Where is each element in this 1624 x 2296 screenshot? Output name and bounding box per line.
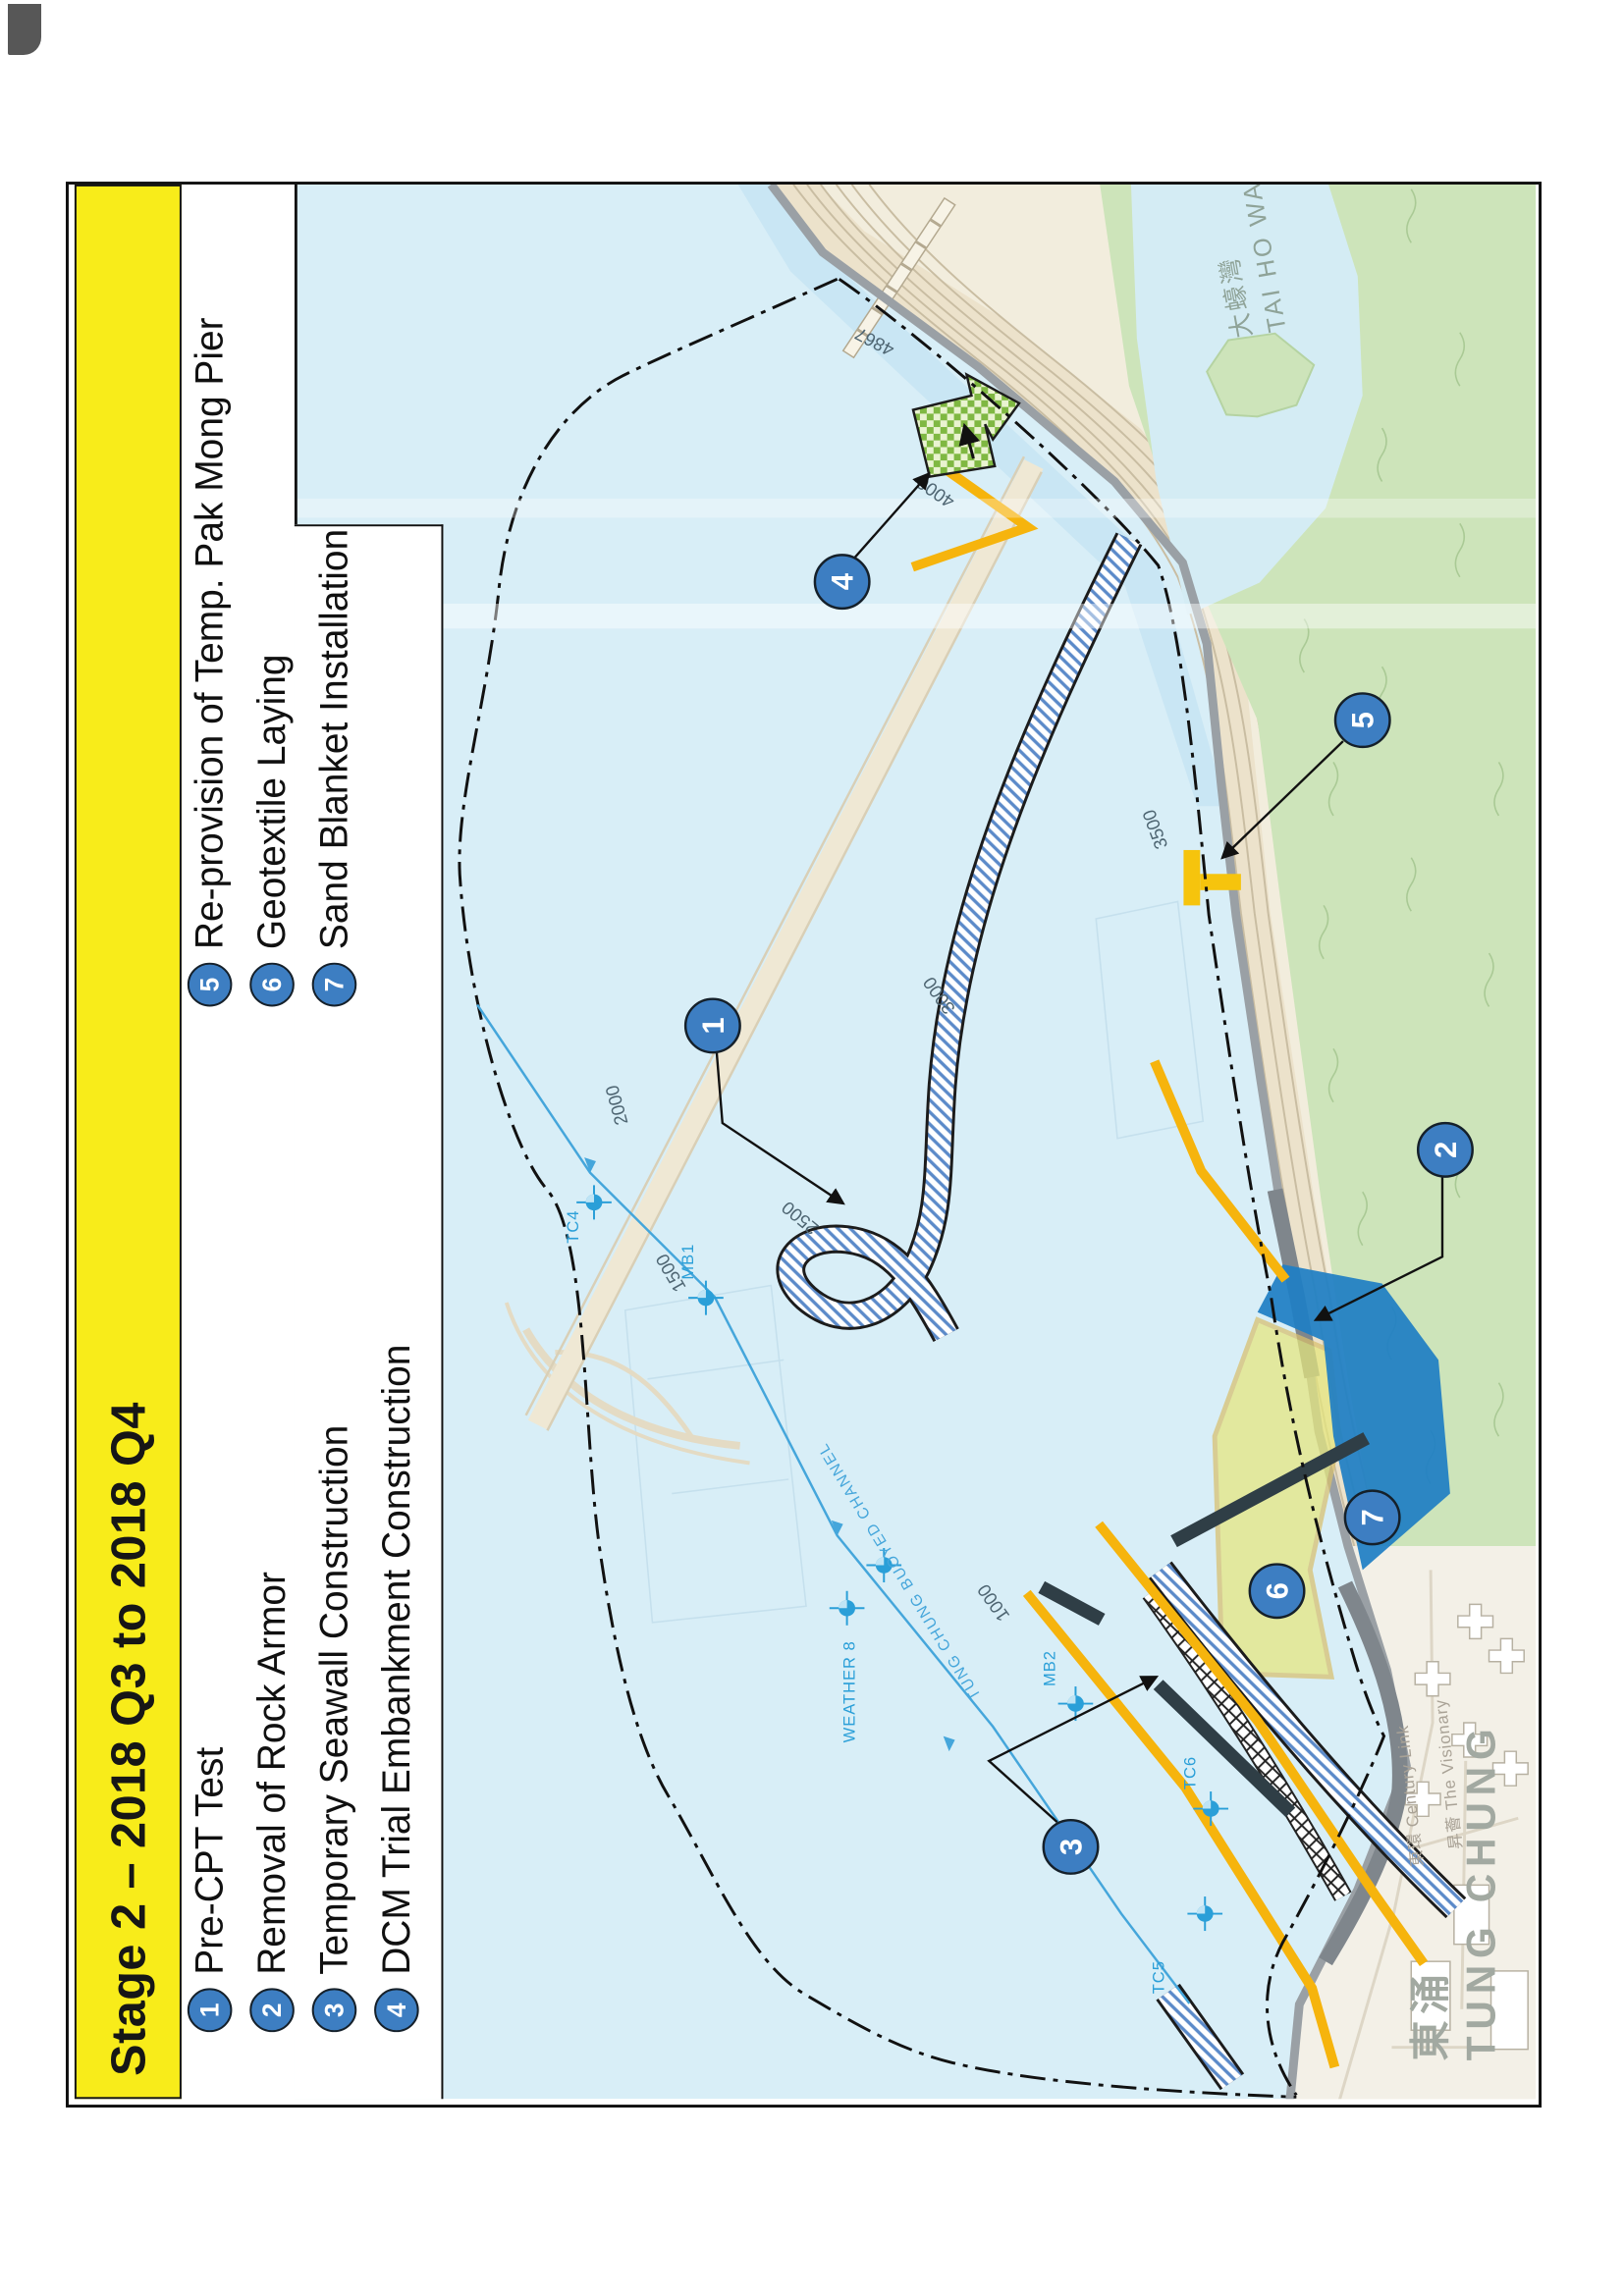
- scan-streak: [295, 499, 1536, 517]
- legend-item-7: 7 Sand Blanket Installation: [312, 529, 357, 1007]
- svg-text:東涌: 東涌: [1408, 1967, 1453, 2060]
- legend-item-2: 2 Removal of Rock Armor: [249, 1572, 295, 2032]
- survey-marker-label: TC5: [1149, 1960, 1167, 1994]
- drawing-sheet: WEATHER 8MB1TC4MB2TC6TC54867400035003000…: [66, 182, 1542, 2108]
- legend-bullet-5: 5: [188, 963, 233, 1007]
- legend-bullet-3: 3: [312, 1988, 357, 2032]
- legend-label-5: Re-provision of Temp. Pak Mong Pier: [188, 317, 232, 949]
- legend-item-4: 4 DCM Trial Embankment Construction: [374, 1345, 419, 2033]
- svg-text:TUNG CHUNG: TUNG CHUNG: [1458, 1722, 1503, 2060]
- svg-text:4: 4: [825, 572, 859, 590]
- survey-marker-label: WEATHER 8: [839, 1640, 858, 1742]
- page-title: Stage 2 – 2018 Q3 to 2018 Q4: [100, 1402, 156, 2097]
- legend-item-1: 1 Pre-CPT Test: [188, 1747, 233, 2032]
- map-callout-6: 6: [1250, 1565, 1304, 1618]
- svg-text:3: 3: [1054, 1839, 1088, 1855]
- svg-text:2: 2: [1429, 1142, 1463, 1158]
- map-callout-7: 7: [1345, 1491, 1399, 1544]
- survey-marker-label: TC4: [564, 1210, 582, 1244]
- svg-text:7: 7: [1355, 1509, 1389, 1525]
- survey-marker-label: MB2: [1041, 1650, 1059, 1686]
- scanned-page: { "title": "Stage 2 – 2018 Q3 to 2018 Q4…: [0, 0, 1624, 2296]
- legend-bullet-2: 2: [249, 1988, 295, 2032]
- svg-text:1: 1: [696, 1017, 731, 1034]
- survey-marker-label: TC6: [1180, 1756, 1199, 1789]
- legend-bullet-1: 1: [188, 1988, 233, 2032]
- legend-item-6: 6 Geotextile Laying: [249, 654, 295, 1006]
- scan-streak: [295, 604, 1536, 628]
- legend-label-3: Temporary Seawall Construction: [312, 1425, 356, 1975]
- legend-bullet-4: 4: [374, 1988, 419, 2032]
- legend-label-1: Pre-CPT Test: [188, 1747, 232, 1975]
- legend-item-3: 3 Temporary Seawall Construction: [312, 1425, 357, 2032]
- svg-text:6: 6: [1260, 1582, 1294, 1599]
- legend-label-4: DCM Trial Embankment Construction: [375, 1345, 419, 1975]
- legend-label-2: Removal of Rock Armor: [250, 1572, 295, 1975]
- scan-artifact: [8, 4, 41, 55]
- legend-bullet-7: 7: [312, 963, 357, 1007]
- legend-bullet-6: 6: [249, 963, 295, 1007]
- legend-label-7: Sand Blanket Installation: [312, 529, 356, 949]
- title-bar: Stage 2 – 2018 Q3 to 2018 Q4: [75, 185, 182, 2099]
- legend-label-6: Geotextile Laying: [250, 654, 295, 949]
- legend-item-5: 5 Re-provision of Temp. Pak Mong Pier: [188, 317, 233, 1006]
- svg-text:5: 5: [1345, 712, 1380, 728]
